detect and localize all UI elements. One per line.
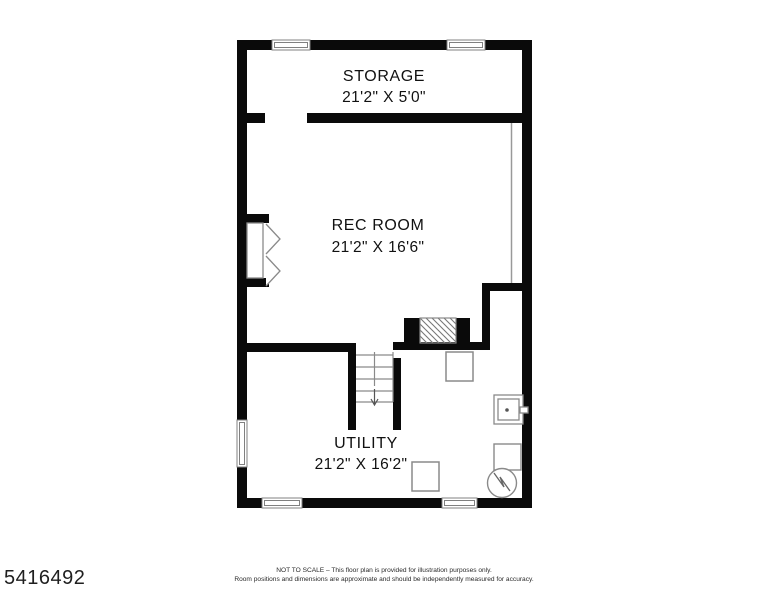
window-icon: [442, 498, 477, 508]
window-icon: [272, 40, 310, 50]
wall-right: [522, 40, 532, 508]
fireplace-icon: [420, 318, 456, 343]
floor-plan-drawing: STORAGE 21'2" X 5'0" REC ROOM 21'2" X 16…: [0, 0, 768, 594]
room-label-rec-room: REC ROOM: [332, 217, 425, 234]
wall-alcove-vertical: [482, 283, 490, 350]
double-door-icon: [247, 223, 280, 286]
water-heater-icon: [488, 469, 517, 498]
room-dim-utility: 21'2" X 16'2": [315, 456, 408, 473]
equipment-box-icon: [412, 462, 439, 491]
door-opening-storage: [265, 112, 307, 124]
wall-stair-right: [393, 358, 401, 430]
disclaimer-line-2: Room positions and dimensions are approx…: [0, 575, 768, 584]
floor-plan-page: STORAGE 21'2" X 5'0" REC ROOM 21'2" X 16…: [0, 0, 768, 594]
room-label-storage: STORAGE: [343, 68, 425, 85]
disclaimer: NOT TO SCALE – This floor plan is provid…: [0, 566, 768, 584]
utility-sink-icon: [494, 395, 528, 424]
window-icon: [447, 40, 485, 50]
furnace-icon: [494, 444, 521, 470]
room-label-utility: UTILITY: [334, 435, 398, 452]
wall-storage-divider-right: [307, 113, 522, 123]
wall-rec-utility-divider: [247, 343, 353, 352]
window-icon: [262, 498, 302, 508]
room-dim-storage: 21'2" X 5'0": [342, 89, 426, 106]
disclaimer-line-1: NOT TO SCALE – This floor plan is provid…: [0, 566, 768, 575]
room-dim-rec-room: 21'2" X 16'6": [332, 239, 425, 256]
stairs-down-icon: [356, 352, 393, 405]
wall-closet-stub-top: [247, 214, 269, 223]
wall-fireplace-post-right: [456, 318, 470, 350]
wall-fireplace-post-left: [404, 318, 420, 350]
window-icon: [237, 420, 247, 467]
support-post-icon: [446, 352, 473, 381]
wall-stair-left: [348, 343, 356, 430]
wall-storage-divider-left: [247, 113, 265, 123]
